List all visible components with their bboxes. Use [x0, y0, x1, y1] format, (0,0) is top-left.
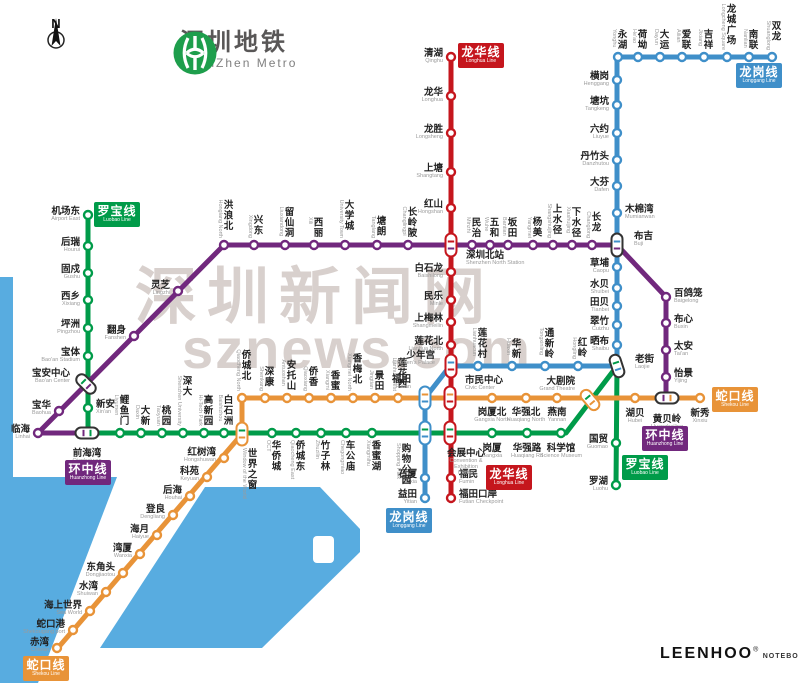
leenhoo-notebook-label: NOTEBOOK [763, 653, 799, 660]
station-label-liyumen: 鲤鱼门Liyumen [113, 395, 128, 427]
station-label-hubei: 湖贝Hubei [625, 409, 644, 425]
station-label-fanshen: 翻身Fanshen [105, 326, 126, 342]
station-label-tianbei: 田贝Tianbei [590, 298, 609, 314]
station-label-guomao: 国贸Guomao [587, 435, 608, 451]
station-label-shangshuijing: 上水径Shangshuijing [546, 203, 561, 238]
station-label-honglang-north: 洪浪北Honglang North [217, 199, 232, 238]
station-label-cuizhu: 翠竹Cuizhu [590, 317, 609, 333]
station-label-gangxia-north: 岗厦北Gangxia North [474, 408, 509, 424]
station-label-luohu: 罗湖Luohu [589, 477, 608, 493]
station-label-futian-checkpoint: 福田口岸Futian Checkpoint [459, 490, 503, 506]
station-label-yonghu: 永湖Yonghu [611, 29, 626, 50]
station-label-henggang: 横岗Henggang [584, 72, 609, 88]
interchange-label-convention-exhibition-center: 会展中心Convention & Exhibition Center [447, 449, 485, 476]
line-badge-shekou-e: 蛇口线Shekou Line [712, 387, 758, 412]
station-label-dengliang: 登良Dengliang [140, 505, 165, 521]
station-label-airport-east: 机场东Airport East [51, 207, 80, 223]
station-label-huaqiang-rd: 华强路Huaqiang Rd [511, 444, 543, 460]
station-label-baohua: 宝华Baohua [32, 401, 51, 417]
station-label-tanglang: 塘朗Tanglang [370, 216, 385, 238]
station-label-chegongmiao: 车公庙Chegongmiao [339, 440, 354, 474]
registered-mark-icon: ® [753, 647, 758, 654]
station-label-shuibei: 水贝Shuibei [590, 280, 609, 296]
interchange-label-children-s-palace: 少年宫Children's Palace [392, 351, 435, 367]
metro-logo: 深圳地铁 ShenZhen Metro [172, 30, 297, 70]
station-label-shenzhen-university: 深大Shenzhen University [176, 376, 191, 426]
station-label-hongshan: 红山Hongshan [418, 200, 443, 216]
station-label-hongling: 红岭Hongling [571, 337, 586, 359]
interchange-label-shenzhen-north-station: 深圳北站Shenzhen North Station [466, 251, 524, 267]
interchange-label-laojie: 老街Laojie [635, 355, 654, 371]
station-label-xiangmihu: 香蜜湖Xiangmihu [365, 440, 380, 472]
station-label-tangkeng: 塘坑Tangkeng [585, 97, 609, 113]
station-label-houhai: 后海Houhai [163, 486, 182, 502]
station-label-hi-tech-park: 高新园Hi-Tech Park [197, 395, 212, 427]
compass-needle-icon [38, 16, 74, 56]
station-label-wuhe: 五和Wuhe [483, 217, 498, 238]
station-label-taoyuan: 桃园Taoyuan [155, 405, 170, 426]
station-label-wanxia: 湾厦Wanxia [113, 544, 132, 560]
station-label-caopu: 草埔Caopu [590, 259, 609, 275]
line-badge-shekou-sw: 蛇口线Shekou Line [23, 656, 69, 681]
line-badge-luobao-e: 罗宝线Luobao Line [622, 455, 668, 480]
interchange-label-grand-theatre: 大剧院Grand Theatre [539, 377, 575, 393]
station-label-huaxin: 华新Huaxin [505, 338, 520, 359]
compass: N [38, 16, 74, 31]
station-label-yannan: 燕南Yannan [547, 408, 566, 424]
station-label-antuoshan: 安托山Antuoshan [280, 360, 295, 392]
interchange-label-buji: 布吉Buji [634, 232, 653, 248]
station-label-shaibu: 晒布Shaibu [590, 337, 609, 353]
station-label-huaqiang-north: 华强北Huaqiang North [507, 408, 546, 424]
station-label-chiwan: 赤湾Chiwan [30, 638, 49, 654]
station-label-xinxiu: 新秀Xinxiu [690, 409, 709, 425]
station-label-qinghu: 清湖Qinghu [424, 49, 443, 65]
station-label-daxin: 大新Daxin [134, 405, 149, 426]
station-label-mumianwan: 木棉湾Mumianwan [625, 205, 655, 221]
interchange-label-shopping-park: 购物公园Shopping Park [395, 443, 410, 485]
station-label-bao-an-stadium: 宝体Bao'an Stadium [41, 348, 80, 364]
station-label-hourui: 后瑞Hourui [61, 238, 80, 254]
station-label-xingdong: 兴东Xingdong [247, 215, 262, 238]
station-label-minle: 民乐Minle [424, 292, 443, 308]
station-label-dafen: 大芬Dafen [590, 178, 609, 194]
interchange-label-futian: 福田Futian [392, 375, 411, 391]
station-label-pingzhou: 坪洲Pingzhou [57, 320, 80, 336]
station-label-tai-an: 太安Tai'an [674, 342, 693, 358]
station-label-qiaocheng-north: 侨城北Qiaocheng North [235, 349, 250, 391]
line-badge-longgang-s: 龙岗线Longgang Line [386, 508, 432, 533]
station-label-shuanglong: 双龙Shuanglong [765, 21, 780, 50]
line-badge-longhua-n: 龙华线Longhua Line [458, 43, 504, 68]
line-badge-longhua-s: 龙华线Longhua Line [486, 465, 532, 490]
station-label-nanlian: 南联Nanlian [742, 29, 757, 50]
station-label-jixiang: 吉祥Jixiang [697, 29, 712, 50]
station-label-shangmeilin: 上梅林Shangmeilin [413, 314, 443, 330]
line-badge-huanzhong-w: 环中线Huanzhong Line [65, 460, 111, 485]
station-label-liuxiandong: 留仙洞Liuxiandong [278, 207, 293, 239]
station-label-dayun: 大运Dayun [653, 29, 668, 50]
station-label-bantian: 坂田Bantian [501, 217, 516, 238]
station-label-qiaocheng-east: 侨城东Qiaocheng East [289, 440, 304, 479]
station-label-changlong: 长龙Changlong [585, 211, 600, 238]
station-label-longsheng: 龙胜Longsheng [416, 125, 443, 141]
station-label-gushu: 固戍Gushu [61, 265, 80, 281]
station-label-yitian: 益田Yitian [398, 490, 417, 506]
station-label-xiangmi: 香蜜Xiangmi [324, 370, 339, 391]
station-label-haiyue: 海月Haiyue [130, 525, 149, 541]
leenhoo-wordmark: LEENHOO [660, 645, 753, 662]
interchange-label-civic-center: 市民中心Civic Center [465, 376, 503, 392]
station-label-xili: 西丽Xili [307, 217, 322, 238]
interchange-label-window-of-the-world: 世界之窗Window of the World [241, 448, 256, 499]
station-label-buxin: 布心Buxin [674, 315, 693, 331]
station-label-university-town: 大学城University Town [338, 200, 353, 238]
station-label-lingzhi: 灵芝Lingzhi [151, 281, 170, 297]
station-label-yangmei: 杨美Yangmei [526, 217, 541, 238]
station-label-danzhutou: 丹竹头Danzhutou [580, 152, 609, 168]
line-badge-longgang-ne: 龙岗线Longgang Line [736, 63, 782, 88]
station-label-hongshuwan: 红树湾Hongshuwan [184, 448, 216, 464]
station-label-shenkang: 深康Shenkang [258, 366, 273, 391]
station-label-baishizhou: 白石洲Baishizhou [217, 395, 232, 427]
station-label-baishilong: 白石龙Baishilong [414, 264, 443, 280]
station-label-jingtian: 景田Jingtian [368, 370, 383, 391]
station-label-xiangmei-north: 香梅北Xiangmei North [346, 353, 361, 391]
station-label-changlingpi: 长岭陂Changlingpi [401, 207, 416, 239]
station-label-shangtang: 上塘Shangtang [416, 164, 443, 180]
station-label-shekougang-port: 蛇口港Shekougang port [23, 620, 65, 636]
metro-map: 深圳新闻网 sznews.com 机场东Airport East后瑞Hourui… [0, 0, 799, 683]
station-label-minzhi: 民治Minzhi [465, 217, 480, 238]
station-label-ailian: 爱联Ailian [675, 29, 690, 50]
station-label-shuiwan: 水湾Shuiwan [77, 582, 98, 598]
station-label-yijing: 怡景Yijing [674, 369, 693, 385]
line-badge-huanzhong-e: 环中线Huanzhong Line [642, 426, 688, 451]
station-label-dongjiaotou: 东角头Dongjiaotou [86, 563, 115, 579]
station-label-science-museum: 科学馆Science Museum [540, 444, 582, 460]
station-labels-layer: 机场东Airport East后瑞Hourui固戍Gushu西乡Xixiang坪… [0, 0, 799, 683]
station-label-sea-world: 海上世界Sea World [44, 601, 82, 617]
line-badge-luobao-nw: 罗宝线Luobao Line [94, 202, 140, 227]
leenhoo-brand: LEENHOO® NOTEBOOK [660, 645, 799, 663]
interchange-label-bao-an-center: 宝安中心Bao'an Center [32, 369, 70, 385]
station-label-longhua: 龙华Longhua [422, 88, 443, 104]
station-label-zhuzilin: 竹子林Zhuzilin [314, 440, 329, 472]
station-label-xiashuijing: 下水径Xiashuijing [565, 207, 580, 239]
station-label-tongxinling: 通新岭Tongxinling [538, 328, 553, 360]
station-label-keyuan: 科苑Keyuan [180, 467, 199, 483]
station-label-longcheng-square: 龙城广场Longcheng Square [720, 4, 735, 50]
station-label-baigelong: 百鸽笼Baigelong [674, 289, 703, 305]
shenzhen-metro-logo-icon [172, 30, 218, 76]
station-label-he-ao: 荷坳He'ao [631, 29, 646, 50]
station-label-lianhuacun: 莲花村Lianhuacun [471, 328, 486, 360]
station-label-qiaoxiang: 侨香Qiaoxiang [302, 366, 317, 391]
station-label-linhai: 临海Linhai [11, 425, 30, 441]
station-label-liuyue: 六约Liuyue [590, 125, 609, 141]
station-label-xixiang: 西乡Xixiang [61, 292, 80, 308]
station-label-oct: 华侨城OCT [265, 440, 280, 472]
